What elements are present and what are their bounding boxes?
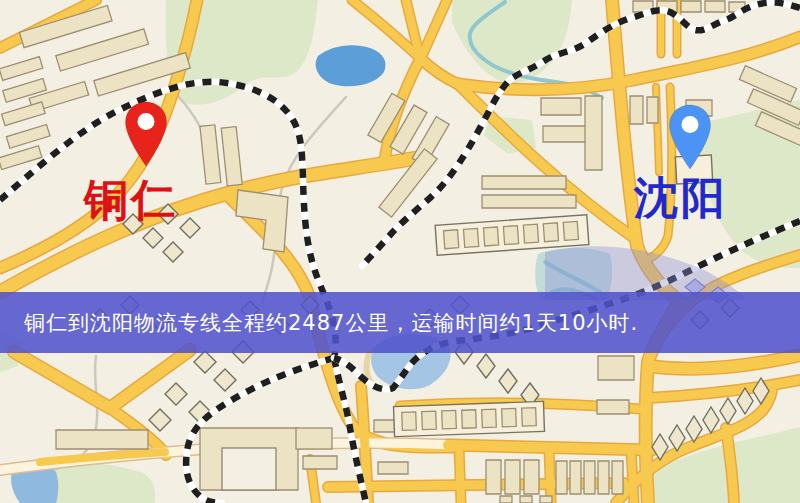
origin-city-label: 铜仁 [84, 178, 178, 222]
road [631, 450, 634, 503]
pin-hole [682, 116, 699, 133]
pin-body [670, 105, 711, 169]
route-info-banner: 铜仁到沈阳物流专线全程约2487公里，运输时间约1天10小时. [0, 292, 800, 353]
building [296, 428, 332, 449]
destination-pin-icon [667, 103, 713, 173]
road [549, 449, 551, 503]
destination-city-label: 沈阳 [634, 176, 728, 220]
building [402, 408, 537, 431]
map-background [0, 0, 800, 503]
route-map-image: 铜仁 沈阳 铜仁到沈阳物流专线全程约2487公里，运输时间约1天10小时. [0, 0, 800, 503]
origin-pin-icon [123, 100, 169, 170]
building-units [402, 408, 537, 431]
pin-body [126, 102, 167, 166]
road [459, 447, 461, 503]
route-info-text: 铜仁到沈阳物流专线全程约2487公里，运输时间约1天10小时. [24, 309, 638, 337]
pin-hole [138, 113, 155, 130]
courtyard [222, 448, 276, 490]
